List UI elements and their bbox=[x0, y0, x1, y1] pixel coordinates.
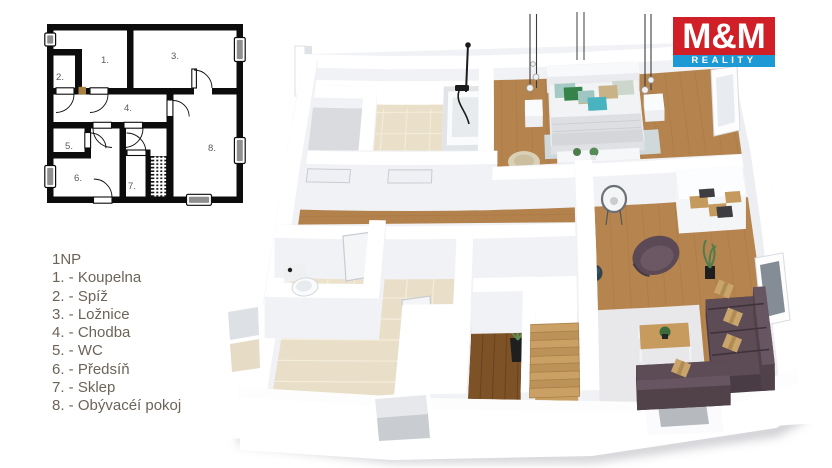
svg-text:2.: 2. bbox=[56, 72, 64, 83]
svg-text:5.: 5. bbox=[65, 141, 73, 152]
svg-text:4.: 4. bbox=[124, 103, 132, 114]
svg-text:6.: 6. bbox=[74, 173, 82, 184]
svg-text:7.: 7. bbox=[128, 181, 136, 192]
svg-text:8.: 8. bbox=[208, 143, 216, 154]
svg-text:3.: 3. bbox=[171, 51, 179, 62]
svg-text:1.: 1. bbox=[101, 55, 109, 66]
